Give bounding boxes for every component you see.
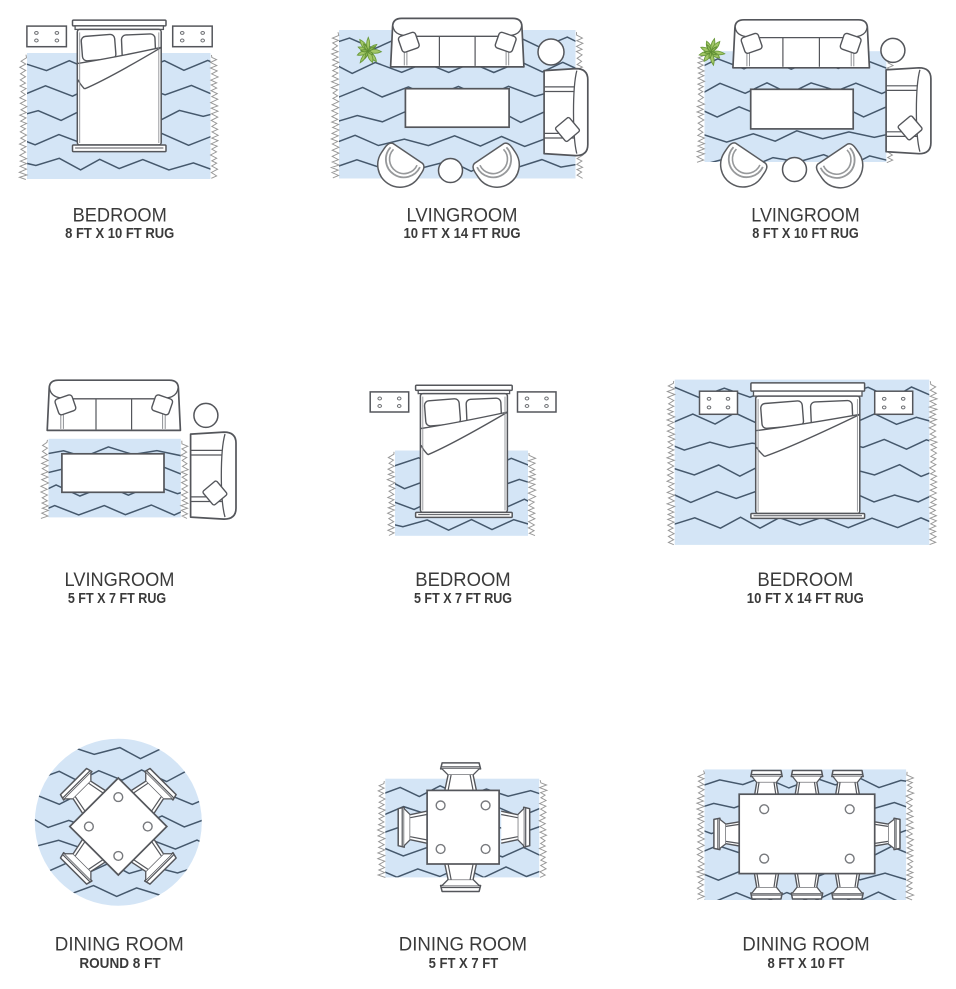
svg-text:10 FT X 14 FT RUG: 10 FT X 14 FT RUG (747, 590, 864, 607)
svg-text:5 FT X 7 FT RUG: 5 FT X 7 FT RUG (414, 590, 512, 607)
svg-text:LVINGROOM: LVINGROOM (407, 204, 518, 226)
svg-text:DINING ROOM: DINING ROOM (399, 934, 527, 956)
svg-text:BEDROOM: BEDROOM (757, 569, 853, 591)
svg-text:LVINGROOM: LVINGROOM (65, 569, 175, 591)
svg-text:LVINGROOM: LVINGROOM (751, 204, 859, 226)
svg-text:BEDROOM: BEDROOM (415, 569, 510, 591)
svg-text:8 FT X 10 FT RUG: 8 FT X 10 FT RUG (65, 225, 174, 242)
svg-text:5 FT X 7 FT: 5 FT X 7 FT (429, 955, 499, 972)
svg-text:8 FT X 10 FT: 8 FT X 10 FT (768, 955, 845, 972)
svg-text:8 FT X 10 FT RUG: 8 FT X 10 FT RUG (752, 225, 859, 242)
svg-text:DINING ROOM: DINING ROOM (55, 934, 184, 956)
svg-text:5 FT X 7 FT RUG: 5 FT X 7 FT RUG (68, 590, 166, 607)
svg-text:10 FT X 14 FT RUG: 10 FT X 14 FT RUG (403, 225, 520, 242)
svg-text:DINING ROOM: DINING ROOM (742, 934, 869, 956)
svg-text:BEDROOM: BEDROOM (73, 204, 167, 226)
svg-text:ROUND 8 FT: ROUND 8 FT (79, 955, 160, 972)
